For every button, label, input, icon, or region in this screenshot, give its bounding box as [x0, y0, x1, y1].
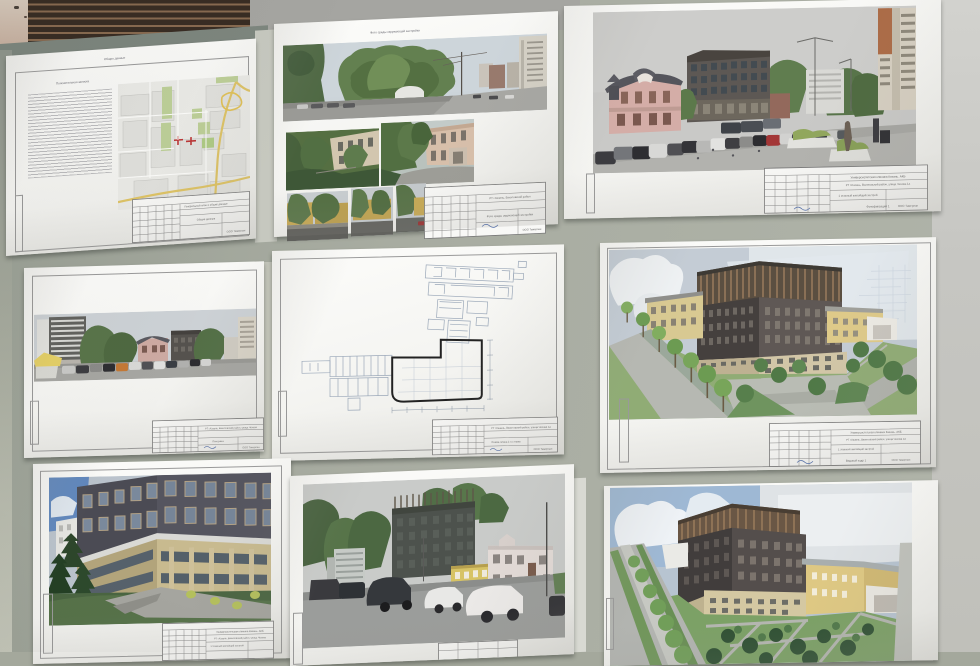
svg-text:1 этажный жилойщий застрой: 1 этажный жилойщий застрой	[839, 193, 878, 198]
svg-text:ООО Тамерлан: ООО Тамерлан	[898, 204, 919, 208]
svg-text:Панорама: Панорама	[212, 440, 224, 443]
svg-text:1 этажный жилойщий застрой: 1 этажный жилойщий застрой	[838, 447, 875, 452]
svg-text:ООО Тамерлан: ООО Тамерлан	[892, 458, 911, 462]
svg-text:Схема плана 1-го этажа: Схема плана 1-го этажа	[492, 439, 521, 444]
svg-text:Фотофиксация 1: Фотофиксация 1	[866, 204, 889, 208]
svg-text:ООО Тамерлан: ООО Тамерлан	[534, 447, 553, 451]
svg-text:ООО Тамерлан: ООО Тамерлан	[242, 446, 260, 449]
svg-text:Видовой кадр 1: Видовой кадр 1	[846, 458, 867, 462]
